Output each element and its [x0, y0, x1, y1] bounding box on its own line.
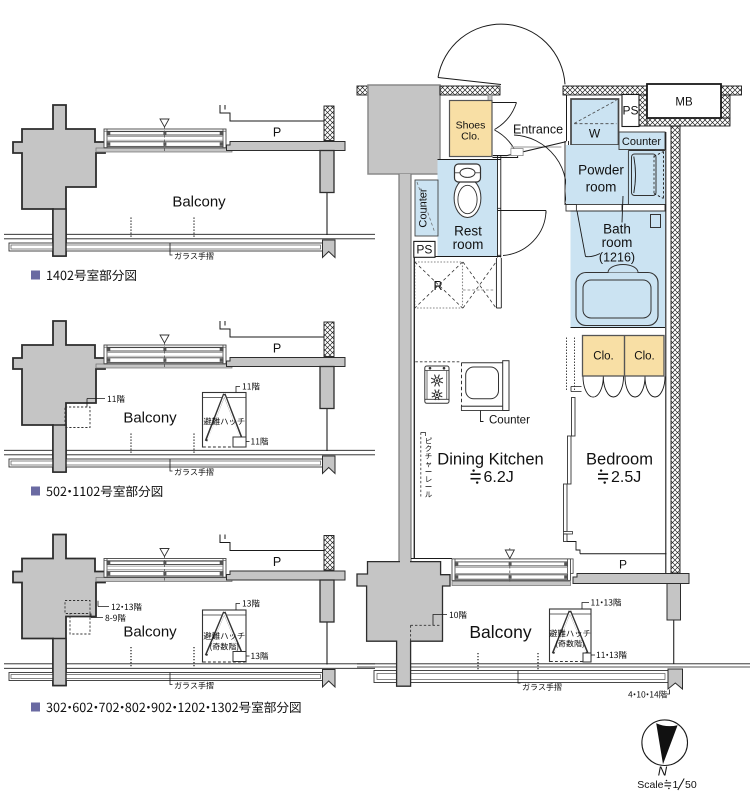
svg-text:Scale: Scale — [637, 779, 663, 791]
svg-text:room: room — [602, 235, 633, 250]
svg-text:room: room — [453, 237, 484, 252]
svg-text:1: 1 — [673, 779, 679, 791]
svg-text:Clo.: Clo. — [461, 130, 480, 142]
svg-text:6.2J: 6.2J — [484, 469, 514, 486]
svg-text:Clo.: Clo. — [593, 351, 613, 363]
svg-text:P: P — [273, 126, 281, 140]
svg-text:Bedroom: Bedroom — [586, 451, 653, 469]
svg-text:Counter: Counter — [622, 136, 661, 148]
svg-text:R: R — [433, 279, 442, 293]
svg-text:P: P — [619, 558, 627, 572]
svg-text:Balcony: Balcony — [172, 194, 226, 211]
svg-text:N: N — [658, 764, 668, 779]
svg-text:P: P — [273, 555, 281, 569]
svg-text:Balcony: Balcony — [469, 622, 532, 642]
svg-text:Powder: Powder — [578, 163, 624, 178]
svg-text:(1216): (1216) — [599, 251, 635, 265]
svg-text:MB: MB — [675, 97, 693, 109]
svg-text:Balcony: Balcony — [123, 624, 177, 641]
svg-text:PS: PS — [622, 104, 638, 118]
svg-text:W: W — [589, 127, 601, 141]
svg-text:Entrance: Entrance — [513, 123, 563, 137]
svg-text:Dining Kitchen: Dining Kitchen — [437, 451, 543, 469]
svg-text:Balcony: Balcony — [123, 410, 177, 427]
svg-text:P: P — [273, 342, 281, 356]
svg-text:PS: PS — [416, 243, 432, 257]
svg-text:Counter: Counter — [418, 188, 430, 227]
svg-text:2.5J: 2.5J — [611, 469, 641, 486]
svg-text:Clo.: Clo. — [634, 351, 654, 363]
svg-text:50: 50 — [685, 779, 697, 791]
svg-text:room: room — [586, 180, 617, 195]
svg-text:Counter: Counter — [489, 415, 530, 427]
